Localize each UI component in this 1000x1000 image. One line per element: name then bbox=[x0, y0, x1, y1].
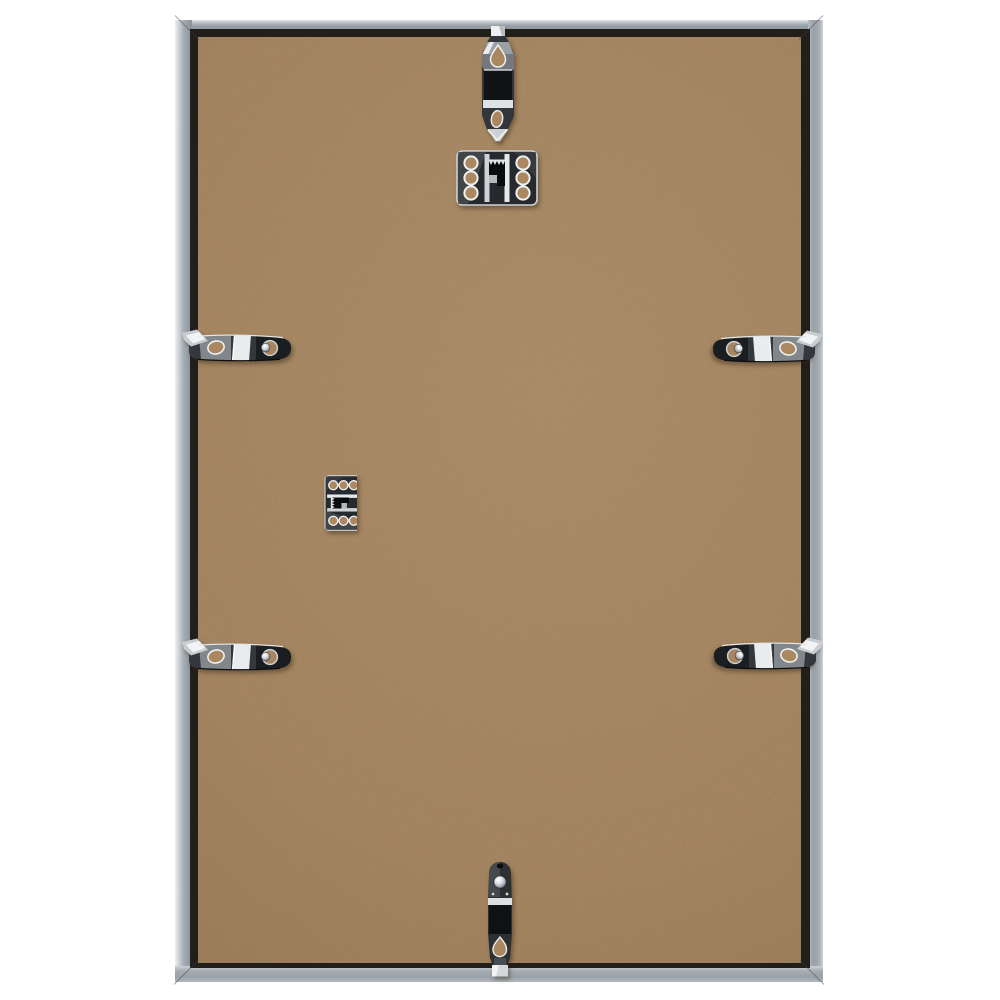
sawtooth-hanger-portrait bbox=[456, 150, 538, 206]
spring-clip-right-lower bbox=[711, 636, 823, 676]
spring-clip-left-upper bbox=[182, 328, 294, 368]
spring-clip-top bbox=[478, 26, 518, 146]
sawtooth-hanger-landscape bbox=[301, 448, 357, 533]
frame-rail-right bbox=[808, 20, 823, 982]
spring-clip-right-upper bbox=[710, 329, 822, 369]
spring-clip-bottom bbox=[482, 861, 518, 977]
product-photo-canvas bbox=[0, 0, 1000, 1000]
spring-clip-left-lower bbox=[182, 637, 294, 677]
